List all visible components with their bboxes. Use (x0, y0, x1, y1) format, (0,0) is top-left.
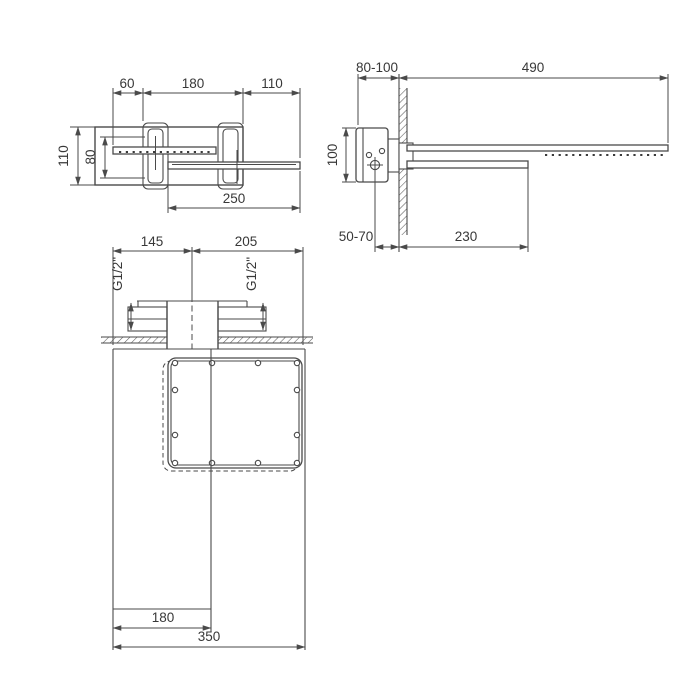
front-bottom-dimension: 250 (168, 171, 300, 213)
dim-label-250: 250 (223, 191, 246, 206)
dim-label-230: 230 (455, 229, 478, 244)
plan-wall (101, 337, 313, 343)
plan-top-dimensions: 145 205 (113, 234, 303, 345)
dim-label-145: 145 (141, 234, 164, 249)
dim-label-350: 350 (198, 629, 221, 644)
plan-arm-right (218, 307, 266, 331)
front-view: 60 180 110 110 80 (56, 76, 300, 213)
dim-label-60: 60 (119, 76, 134, 91)
front-body-plate (95, 127, 243, 185)
dim-label-50-70: 50-70 (339, 229, 374, 244)
shower-plate-outer (168, 358, 302, 468)
front-waterfall-spout (113, 147, 216, 154)
screw-hole-icon (366, 152, 371, 157)
technical-drawing-canvas: 60 180 110 110 80 (0, 0, 700, 700)
front-left-dimensions: 110 80 (56, 127, 145, 185)
front-rain-bar (168, 162, 300, 169)
front-bracket-right (218, 123, 243, 189)
side-rain-arm (407, 145, 668, 155)
plan-view: 145 205 G1/2" G1/2" (101, 234, 313, 650)
dim-label-490: 490 (522, 60, 545, 75)
dim-label-100: 100 (325, 144, 340, 167)
plan-arm-left (128, 307, 167, 331)
plan-supply-body (128, 296, 266, 352)
dim-label-180-front: 180 (182, 76, 205, 91)
side-wall-connector (388, 139, 399, 172)
shower-plate (163, 358, 302, 471)
dim-label-205: 205 (235, 234, 258, 249)
shower-dimension-drawing: 60 180 110 110 80 (0, 0, 700, 700)
thread-label-right: G1/2" (244, 257, 259, 291)
screw-hole-icon (379, 148, 384, 153)
dim-label-110-left: 110 (56, 145, 71, 167)
plan-bottom-dimensions: 180 350 (113, 610, 305, 647)
dim-label-80-100: 80-100 (356, 60, 398, 75)
dim-label-80: 80 (83, 149, 98, 164)
thread-label-left: G1/2" (110, 257, 125, 291)
side-waterfall-arm (407, 161, 528, 168)
front-top-dimensions: 60 180 110 (113, 76, 300, 93)
dim-label-180-plan: 180 (152, 610, 175, 625)
side-mounting-box (356, 128, 388, 182)
side-height-dimension: 100 (325, 128, 356, 182)
dim-label-110-top: 110 (261, 76, 283, 91)
side-view: 80-100 490 (325, 60, 668, 252)
